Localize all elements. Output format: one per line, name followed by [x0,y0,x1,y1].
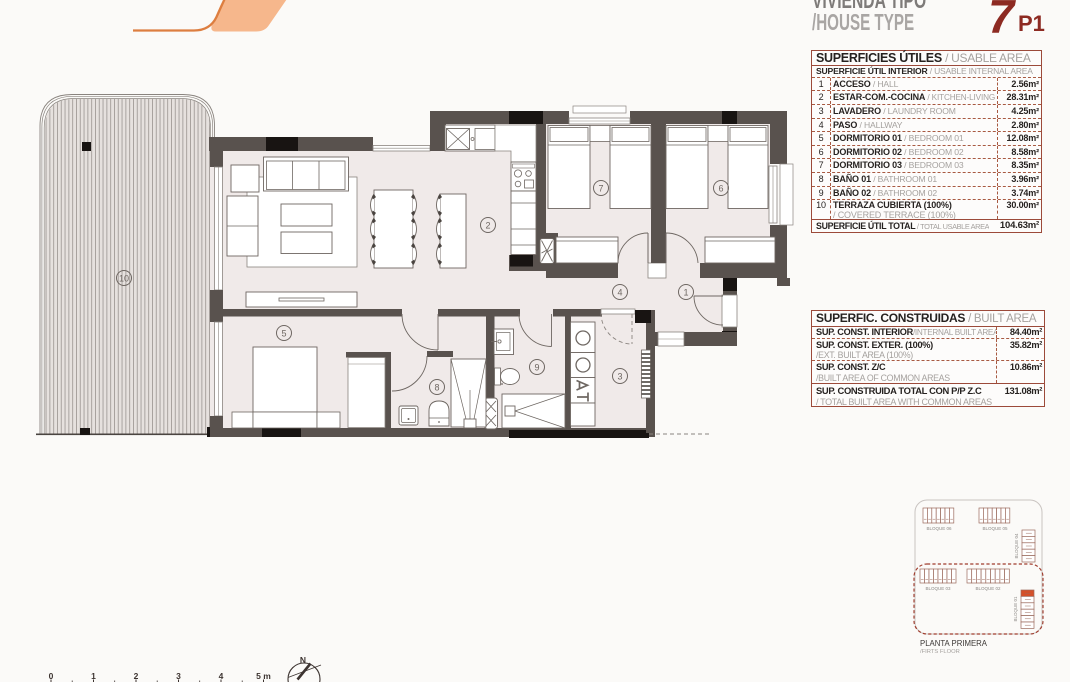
svg-text:BLOQUE 01: BLOQUE 01 [1013,596,1018,622]
svg-text:4: 4 [617,287,622,297]
svg-text:1: 1 [683,287,688,297]
svg-text:9: 9 [534,362,539,372]
svg-text:BLOQUE 06: BLOQUE 06 [926,526,952,531]
svg-text:N: N [300,655,306,665]
svg-text:BLOQUE 02: BLOQUE 02 [975,586,1001,591]
svg-text:BLOQUE 04: BLOQUE 04 [1014,533,1019,559]
svg-text:BLOQUE 03: BLOQUE 03 [925,586,951,591]
svg-text:/FIRTS FLOOR: /FIRTS FLOOR [920,649,960,655]
svg-text:5: 5 [281,328,286,338]
svg-text:10: 10 [119,273,129,283]
svg-text:7: 7 [598,183,603,193]
svg-text:2: 2 [485,220,490,230]
svg-text:6: 6 [718,183,723,193]
svg-text:PLANTA PRIMERA: PLANTA PRIMERA [920,639,988,648]
svg-text:3: 3 [617,371,622,381]
svg-text:BLOQUE 05: BLOQUE 05 [982,526,1008,531]
svg-text:8: 8 [434,382,439,392]
